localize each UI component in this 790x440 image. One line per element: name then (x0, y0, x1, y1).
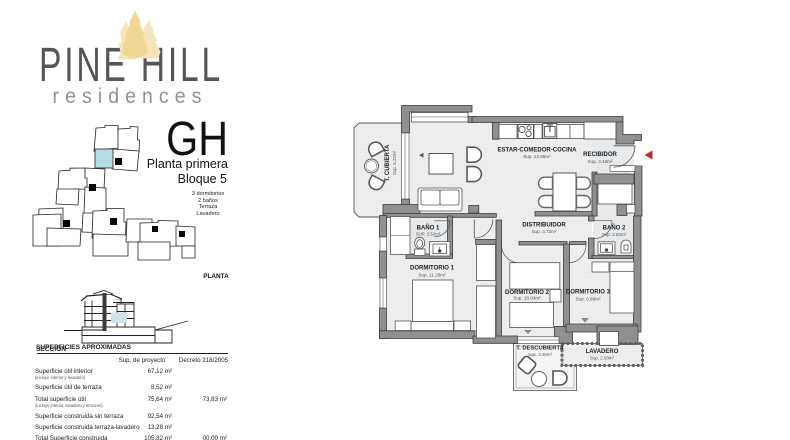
svg-text:Sup. 3.46m²: Sup. 3.46m² (587, 159, 612, 164)
svg-text:Sup. 22.86m²: Sup. 22.86m² (523, 154, 551, 159)
svg-text:BAÑO 1: BAÑO 1 (417, 225, 440, 232)
svg-text:Sup. 2.83m²: Sup. 2.83m² (602, 232, 626, 237)
svg-text:Sup. 3.30m²: Sup. 3.30m² (528, 352, 552, 357)
svg-text:ESTAR-COMEDOR-COCINA: ESTAR-COMEDOR-COCINA (498, 148, 578, 154)
svg-text:T. CUBIERTA: T. CUBIERTA (385, 144, 391, 182)
svg-text:DORMITORIO 1: DORMITORIO 1 (410, 266, 455, 272)
svg-text:DISTRIBUIDOR: DISTRIBUIDOR (522, 223, 566, 229)
svg-text:Sup. 11.28m²: Sup. 11.28m² (418, 273, 446, 278)
svg-text:BAÑO 2: BAÑO 2 (603, 225, 626, 232)
svg-text:LAVADERO: LAVADERO (586, 349, 619, 355)
svg-text:RECIBIDOR: RECIBIDOR (583, 152, 617, 158)
svg-text:Sup. 3.72m²: Sup. 3.72m² (531, 229, 556, 234)
svg-text:SUP. 3.52m²: SUP. 3.52m² (416, 232, 441, 237)
svg-text:Sup. 10.04m²: Sup. 10.04m² (513, 296, 541, 301)
svg-text:Sup. 2.93m²: Sup. 2.93m² (590, 356, 614, 361)
svg-text:Sup. 6.88m²: Sup. 6.88m² (575, 297, 600, 302)
svg-text:DORMITORIO 3: DORMITORIO 3 (566, 290, 611, 296)
svg-text:Sup. 5.22m²: Sup. 5.22m² (392, 151, 397, 175)
svg-text:T. DESCUBIERTA: T. DESCUBIERTA (516, 346, 564, 352)
